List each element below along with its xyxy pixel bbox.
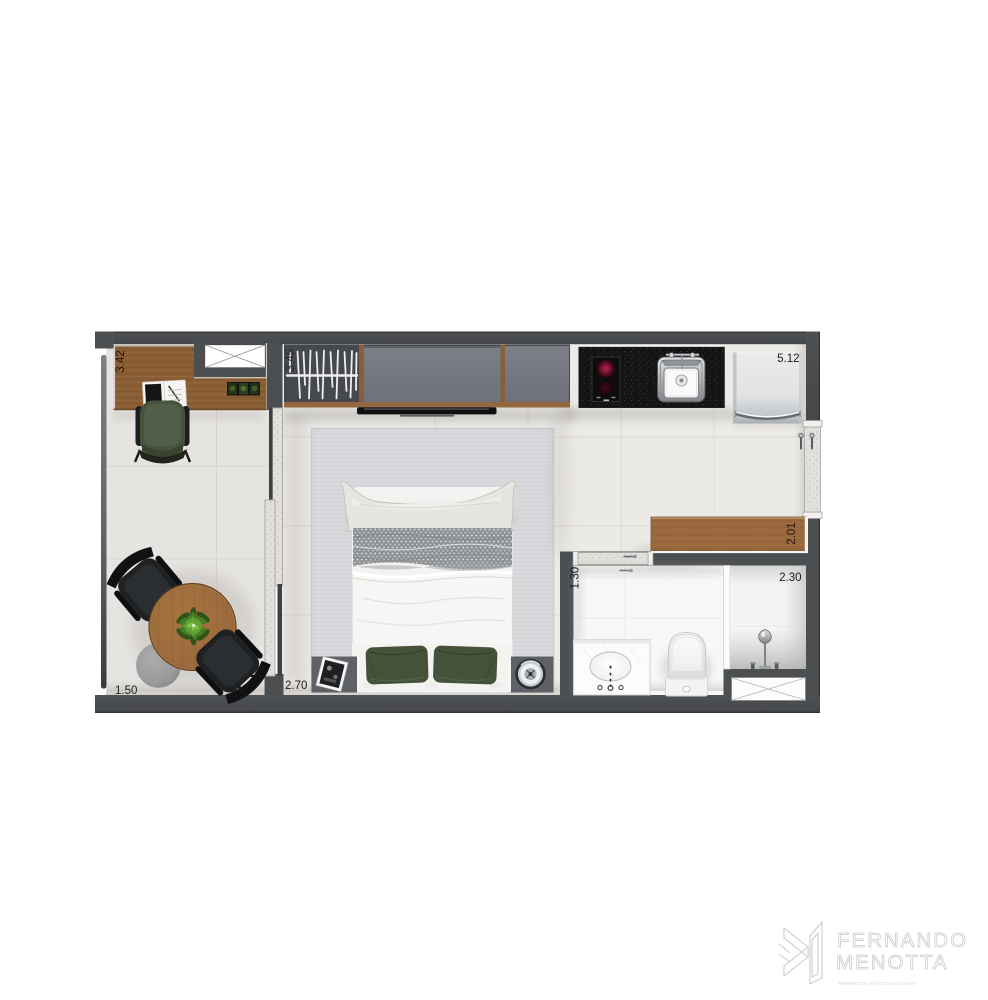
svg-text:PERSPECTIVA ARTISTICA ILUSTRAD: PERSPECTIVA ARTISTICA ILUSTRADA: [838, 981, 916, 986]
svg-text:1.50: 1.50: [115, 685, 137, 697]
svg-text:1.30: 1.30: [570, 567, 582, 589]
svg-text:5.12: 5.12: [777, 353, 799, 365]
svg-text:2.30: 2.30: [779, 572, 801, 584]
svg-text:FERNANDO: FERNANDO: [837, 929, 968, 952]
svg-text:3.42: 3.42: [115, 350, 127, 372]
svg-text:2.01: 2.01: [786, 522, 798, 544]
svg-text:MENOTTA: MENOTTA: [836, 951, 949, 974]
svg-text:2.70: 2.70: [285, 680, 307, 692]
svg-text:3.45: 3.45: [285, 349, 297, 371]
